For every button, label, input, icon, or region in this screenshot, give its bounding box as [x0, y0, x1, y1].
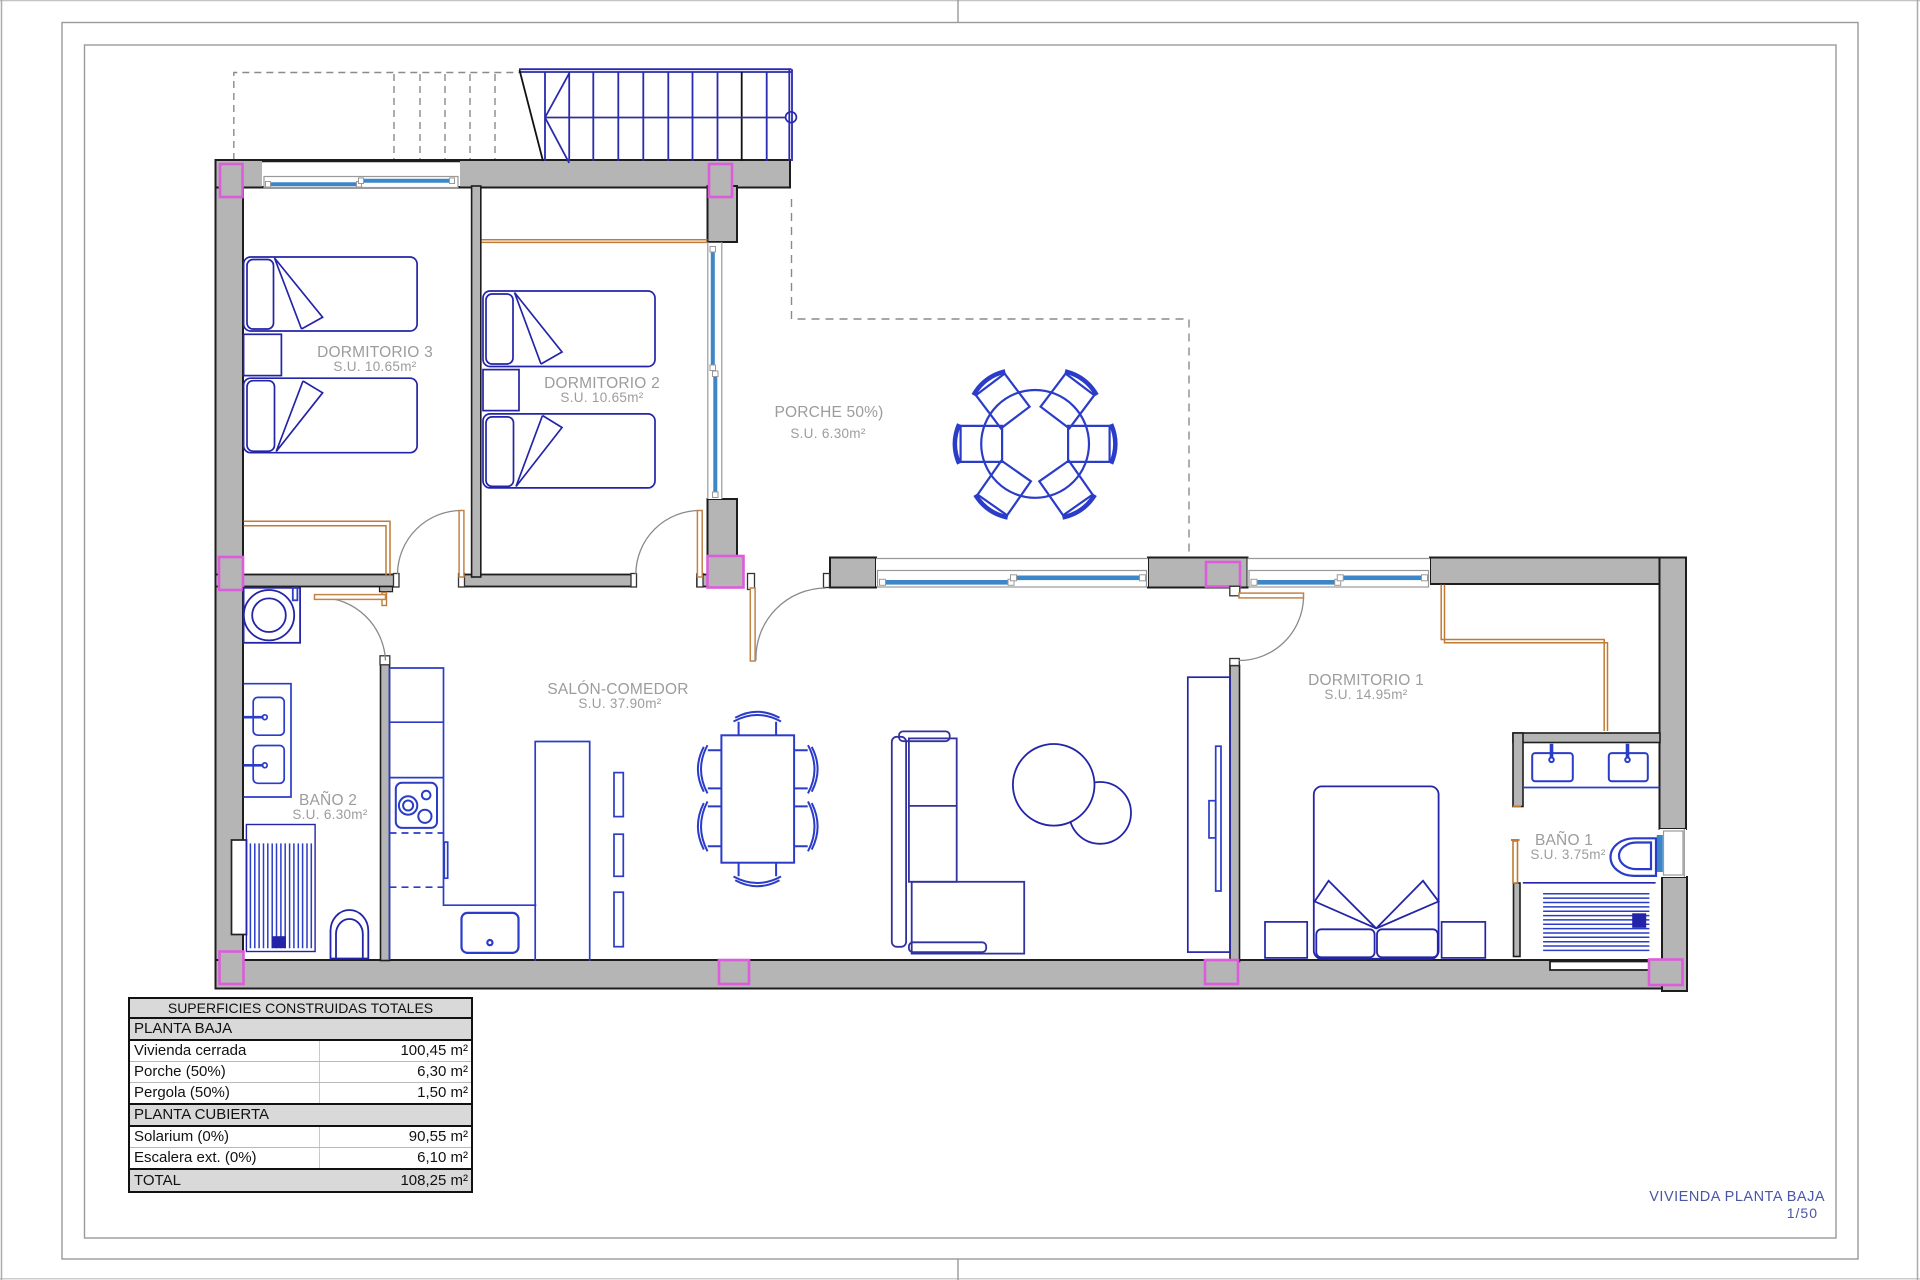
svg-text:S.U. 37.90m²: S.U. 37.90m²	[578, 696, 661, 711]
svg-text:PORCHE 50%): PORCHE 50%)	[774, 404, 883, 421]
svg-text:VIVIENDA PLANTA BAJA: VIVIENDA PLANTA BAJA	[1649, 1189, 1825, 1205]
svg-text:S.U. 6.30m²: S.U. 6.30m²	[790, 426, 866, 441]
svg-text:S.U. 14.95m²: S.U. 14.95m²	[1324, 687, 1407, 702]
svg-text:S.U. 10.65m²: S.U. 10.65m²	[560, 390, 643, 405]
svg-text:1/50: 1/50	[1787, 1205, 1818, 1221]
svg-text:S.U. 10.65m²: S.U. 10.65m²	[333, 359, 416, 374]
svg-text:S.U. 6.30m²: S.U. 6.30m²	[292, 807, 368, 822]
svg-text:S.U. 3.75m²: S.U. 3.75m²	[1530, 847, 1606, 862]
